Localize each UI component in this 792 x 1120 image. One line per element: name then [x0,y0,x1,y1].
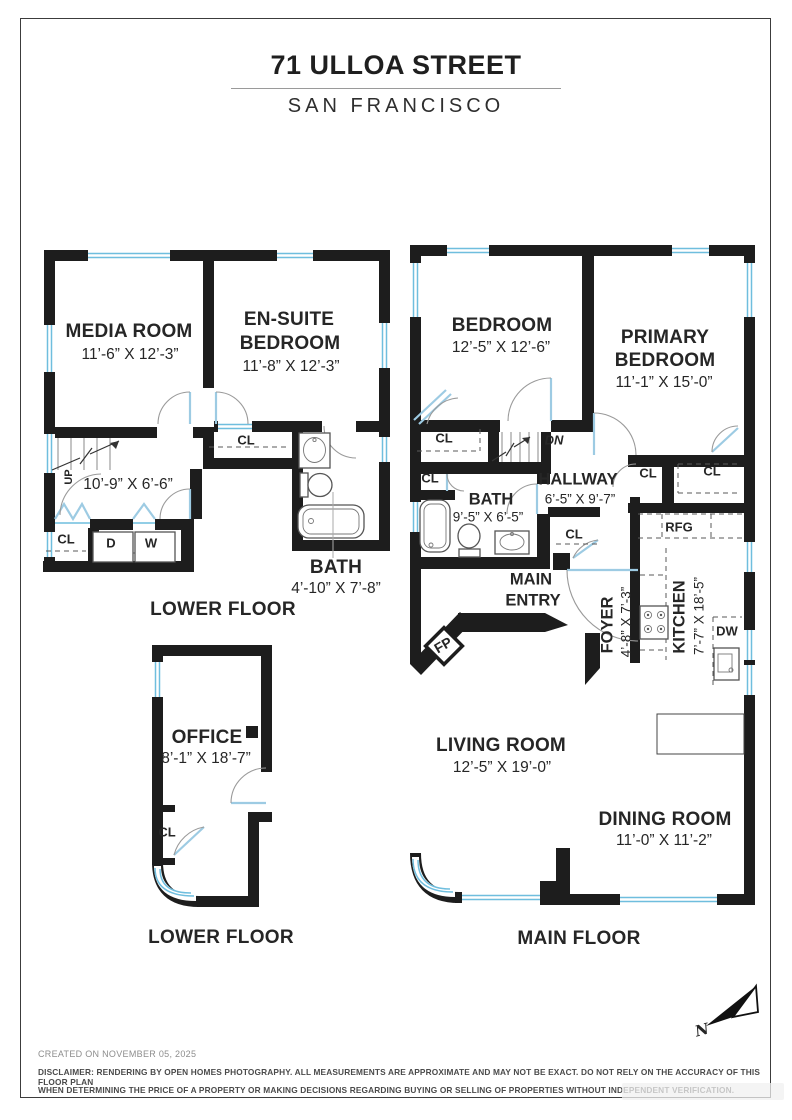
room-dims-living-room: 12’-5” X 19’-0” [453,759,551,777]
room-label-office: OFFICE [172,727,243,749]
room-dims-office: 8’-1” X 18’-7” [161,750,251,768]
room-dims-primary: 11’-1” X 15’-0” [615,374,712,392]
room-label-ensuite-2: BEDROOM [240,333,341,355]
room-dims-stair-hall: 10’-9” X 6’-6” [83,476,173,494]
floor-label-lower-a: LOWER FLOOR [150,599,296,621]
room-dims-dining-room: 11’-0” X 11’-2” [616,832,712,850]
room-label-kitchen: KITCHEN [671,580,690,653]
room-label-ensuite-1: EN-SUITE [244,309,334,331]
room-label-bath-main: BATH [469,491,514,510]
stove-icon [640,606,668,639]
dishwasher-label: DW [716,624,738,639]
closet-label: CL [639,466,656,481]
room-dims-bedroom: 12’-5” X 12’-6” [452,339,550,357]
sink-icon [495,531,529,554]
down-label: DN [545,433,564,448]
dryer-label: D [106,536,115,551]
floor-label-lower-b: LOWER FLOOR [148,927,294,949]
room-label-living-room: LIVING ROOM [436,735,566,757]
refrigerator-label: RFG [665,520,692,535]
room-dims-bath-a: 4’-10” X 7’-8” [291,580,381,598]
dishwasher-icon [714,648,739,680]
room-label-hallway: HALLWAY [538,471,617,490]
toilet-icon [300,473,332,497]
toilet-icon [458,524,480,557]
closet-label: CL [421,471,438,486]
watermark-smudge [622,1083,784,1100]
room-dims-media-room: 11’-6” X 12’-3” [81,346,178,364]
kitchen-counter [657,714,744,754]
room-dims-foyer: 4’-8” X 7’-3” [619,587,634,658]
room-label-bedroom: BEDROOM [452,315,553,337]
closet-label: CL [703,464,720,479]
closet-label: CL [435,431,452,446]
room-label-primary-2: BEDROOM [615,350,716,372]
floor-plan-page: 71 ULLOA STREET SAN FRANCISCO [0,0,792,1120]
floor-label-main: MAIN FLOOR [517,928,640,950]
closet-label: CL [565,527,582,542]
room-dims-hallway: 6’-5” X 9’-7” [545,492,616,507]
bathtub-icon [298,505,364,538]
bathtub-icon [420,500,450,552]
sink-icon [299,433,330,468]
room-label-dining-room: DINING ROOM [598,809,731,831]
room-label-bath-a: BATH [310,557,362,579]
created-date: CREATED ON NOVEMBER 05, 2025 [38,1049,196,1059]
room-dims-bath-main: 9’-5” X 6’-5” [453,510,524,525]
closet-label: CL [158,825,175,840]
washer-label: W [145,536,157,551]
room-label-media-room: MEDIA ROOM [66,321,193,343]
closet-label: CL [237,433,254,448]
room-label-primary-1: PRIMARY [621,327,709,349]
room-label-foyer: FOYER [599,597,618,654]
plan-lower-b [152,645,272,907]
north-arrow-icon [706,986,758,1026]
room-dims-ensuite: 11’-8” X 12’-3” [242,358,339,376]
room-dims-kitchen: 7’-7” X 18’-5” [692,577,707,655]
plan-lower-a [43,250,390,572]
room-label-main-entry-1: MAIN [510,571,552,590]
floor-plan-drawing [0,0,792,1120]
closet-label: CL [57,532,74,547]
room-label-main-entry-2: ENTRY [505,592,560,611]
up-label: UP [63,469,75,484]
stairs-up-icon [52,438,119,470]
